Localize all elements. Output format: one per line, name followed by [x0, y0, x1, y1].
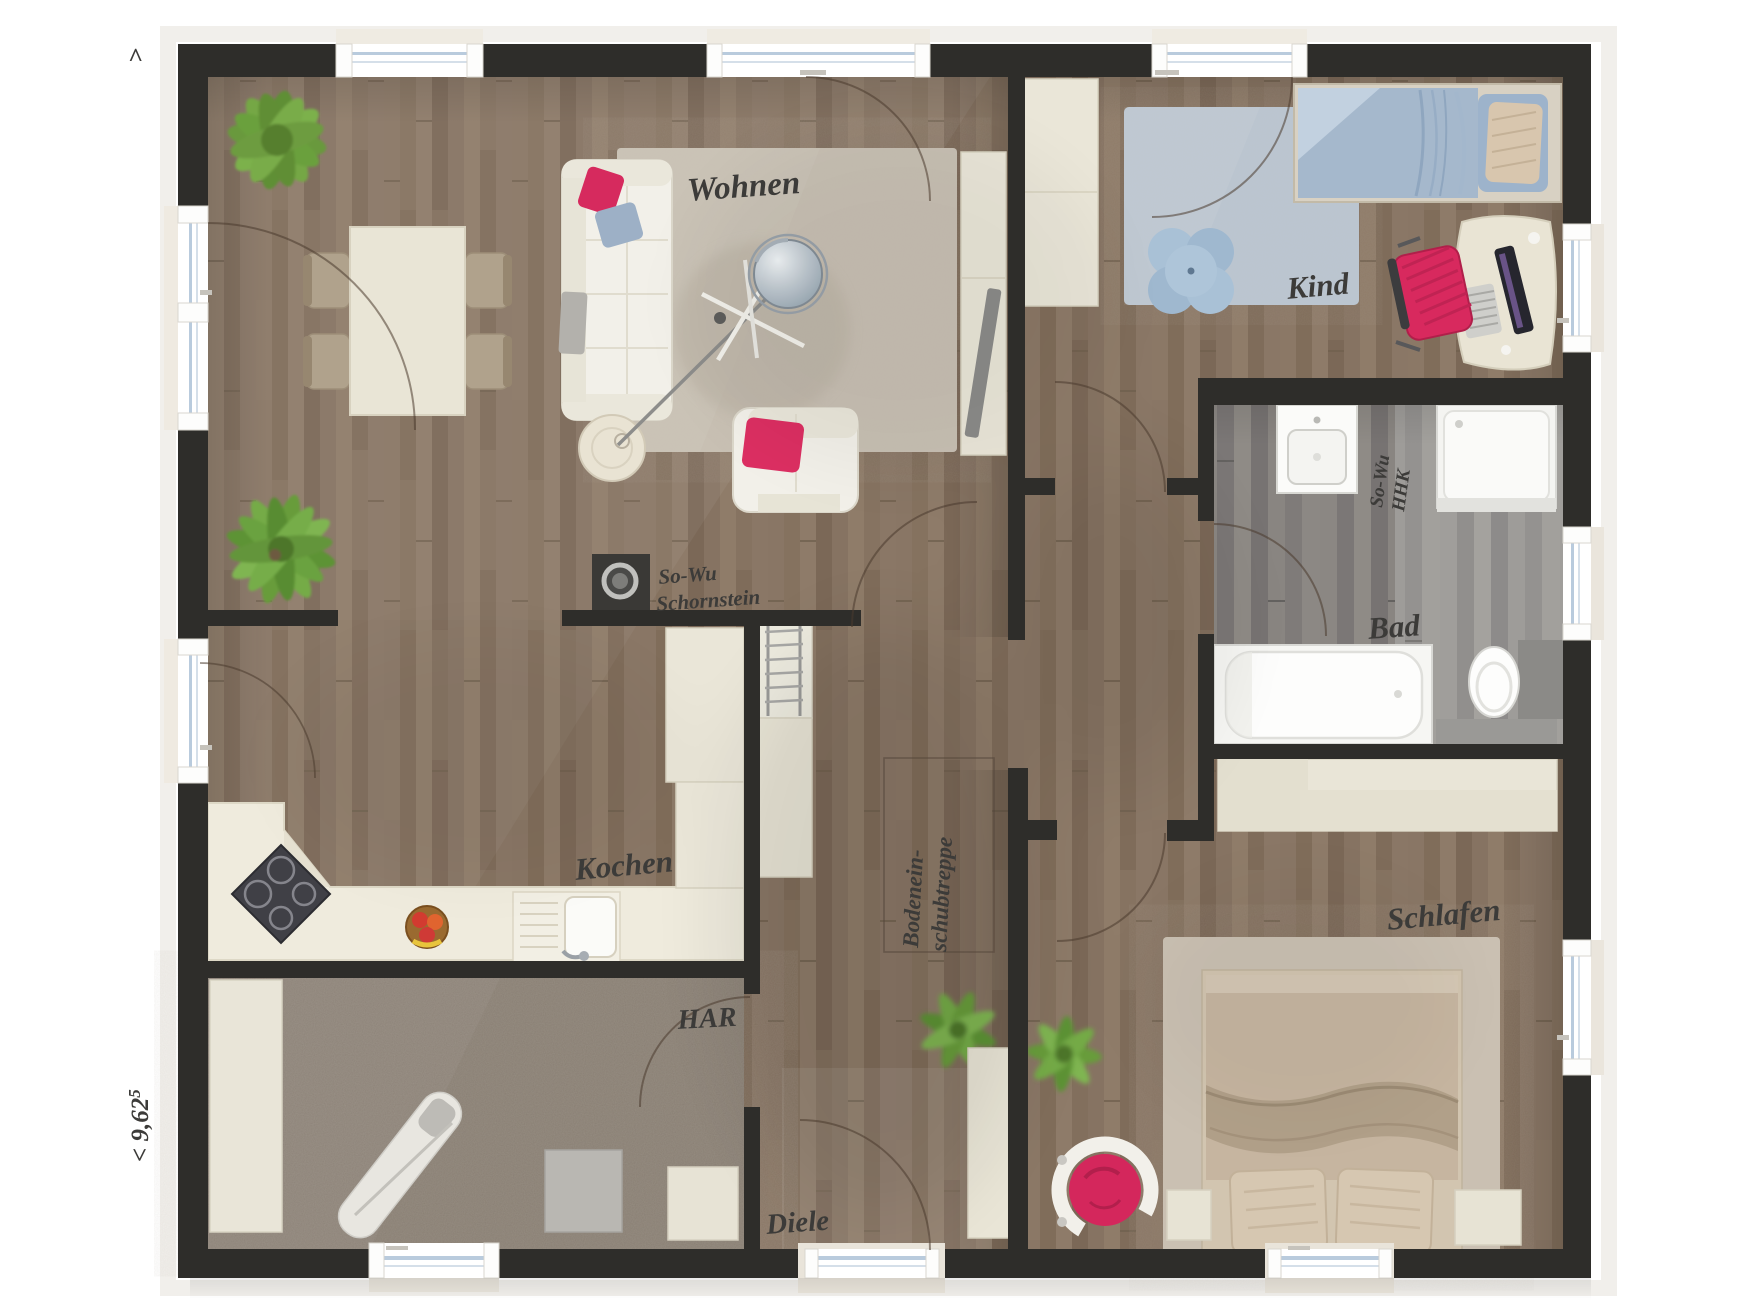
svg-text:Diele: Diele — [764, 1205, 830, 1241]
svg-text:< 9,625: < 9,625 — [125, 1089, 154, 1162]
svg-text:^: ^ — [128, 43, 143, 72]
svg-text:Bodenein-: Bodenein- — [898, 849, 928, 950]
svg-text:Bad: Bad — [1366, 607, 1421, 646]
svg-text:HAR: HAR — [676, 1002, 738, 1036]
svg-text:Kind: Kind — [1284, 265, 1350, 305]
svg-text:So-Wu: So-Wu — [658, 561, 718, 589]
